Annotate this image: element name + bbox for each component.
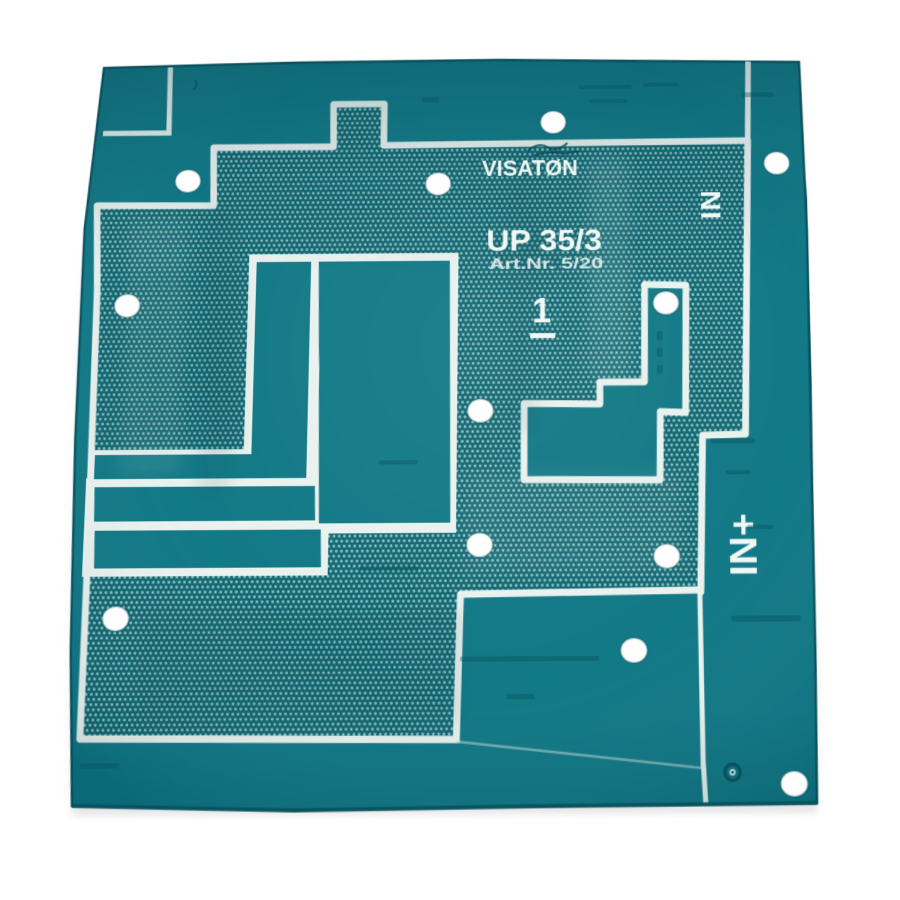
svg-text:VISATØN: VISATØN	[482, 156, 578, 181]
svg-text:IN: IN	[695, 189, 726, 219]
svg-text:IN+: IN+	[721, 513, 766, 576]
svg-text:UP 35/3: UP 35/3	[486, 224, 602, 258]
svg-text:Art.Nr. 5/20: Art.Nr. 5/20	[489, 256, 603, 274]
svg-text:1: 1	[532, 292, 551, 331]
